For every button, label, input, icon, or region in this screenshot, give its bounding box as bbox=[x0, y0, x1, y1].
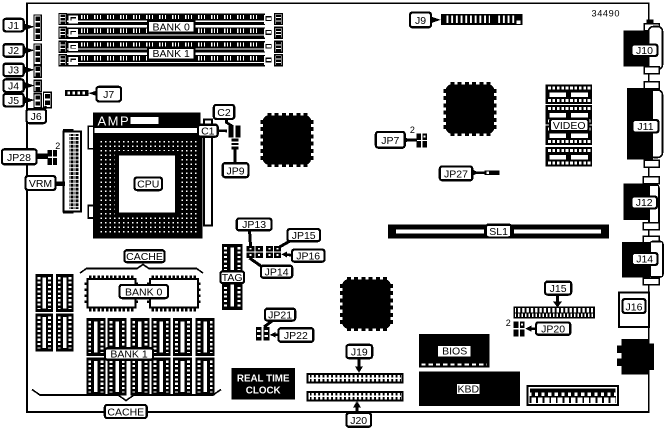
svg-text:J20: J20 bbox=[350, 415, 367, 427]
svg-text:C2: C2 bbox=[217, 107, 231, 119]
svg-text:CACHE: CACHE bbox=[126, 251, 163, 263]
svg-text:JP14: JP14 bbox=[265, 267, 289, 279]
svg-text:J15: J15 bbox=[550, 283, 567, 295]
svg-text:J10: J10 bbox=[636, 45, 653, 57]
svg-text:JP27: JP27 bbox=[444, 168, 468, 180]
svg-text:J5: J5 bbox=[8, 95, 19, 107]
svg-text:JP21: JP21 bbox=[268, 309, 292, 321]
svg-text:J7: J7 bbox=[103, 89, 114, 101]
svg-text:C1: C1 bbox=[201, 126, 215, 138]
svg-text:REAL TIME: REAL TIME bbox=[237, 374, 290, 385]
svg-text:JP13: JP13 bbox=[242, 219, 266, 231]
svg-text:2: 2 bbox=[55, 141, 60, 151]
svg-text:VIDEO: VIDEO bbox=[553, 120, 586, 132]
svg-text:J9: J9 bbox=[415, 15, 426, 27]
svg-text:2: 2 bbox=[410, 125, 415, 135]
svg-text:J11: J11 bbox=[637, 121, 653, 133]
svg-text:J4: J4 bbox=[8, 80, 19, 92]
svg-text:34490: 34490 bbox=[592, 9, 621, 19]
svg-text:J19: J19 bbox=[351, 347, 368, 359]
svg-text:CACHE: CACHE bbox=[107, 407, 144, 419]
svg-text:TAG: TAG bbox=[222, 272, 243, 284]
svg-text:VRM: VRM bbox=[29, 178, 52, 190]
svg-text:2: 2 bbox=[506, 318, 511, 328]
svg-text:BANK 0: BANK 0 bbox=[125, 286, 163, 298]
svg-text:JP28: JP28 bbox=[7, 152, 31, 164]
svg-text:JP22: JP22 bbox=[284, 330, 308, 342]
svg-text:AMP: AMP bbox=[98, 114, 131, 129]
svg-text:SL1: SL1 bbox=[489, 226, 508, 238]
svg-text:CLOCK: CLOCK bbox=[246, 386, 281, 397]
svg-text:J2: J2 bbox=[8, 45, 19, 57]
svg-text:J6: J6 bbox=[31, 111, 42, 123]
svg-text:BANK 1: BANK 1 bbox=[110, 349, 148, 361]
svg-text:BIOS: BIOS bbox=[442, 345, 467, 357]
svg-text:J1: J1 bbox=[8, 20, 19, 32]
svg-text:JP20: JP20 bbox=[541, 323, 565, 335]
svg-text:JP7: JP7 bbox=[381, 135, 399, 147]
svg-text:J12: J12 bbox=[636, 197, 653, 209]
svg-text:JP9: JP9 bbox=[226, 166, 244, 178]
svg-text:J14: J14 bbox=[636, 254, 653, 266]
svg-text:BANK 0: BANK 0 bbox=[153, 22, 191, 34]
svg-text:CPU: CPU bbox=[137, 179, 159, 191]
svg-text:J3: J3 bbox=[8, 65, 19, 77]
svg-text:KBD: KBD bbox=[458, 383, 480, 395]
svg-text:BANK 1: BANK 1 bbox=[153, 48, 191, 60]
svg-text:J16: J16 bbox=[626, 301, 643, 313]
svg-text:JP16: JP16 bbox=[296, 250, 320, 262]
svg-text:JP15: JP15 bbox=[292, 230, 316, 242]
